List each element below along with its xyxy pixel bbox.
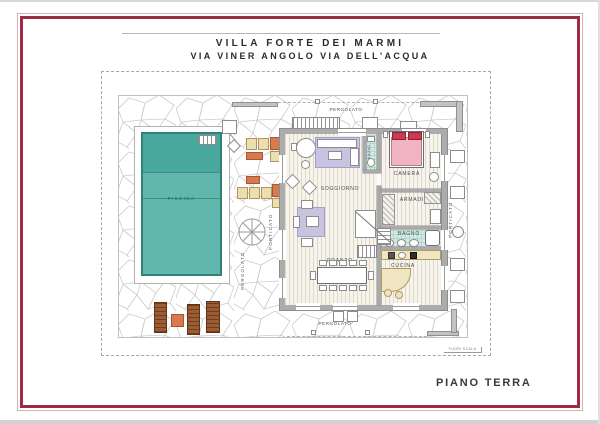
- lounger-side-table: [171, 314, 184, 327]
- window: [441, 230, 448, 250]
- window: [441, 266, 448, 290]
- pillow: [408, 132, 422, 140]
- dresser: [430, 209, 441, 224]
- pergolato-top-label: PERGOLATO: [318, 107, 374, 112]
- chair: [329, 260, 337, 266]
- stool: [395, 291, 403, 299]
- pergola-top-line: [278, 102, 424, 103]
- armchair: [301, 200, 313, 209]
- stair-treads-lower: [357, 245, 377, 258]
- lounger-table: [246, 152, 263, 160]
- nightstand: [425, 131, 430, 138]
- window: [279, 155, 286, 183]
- coffee-table: [328, 151, 342, 160]
- garden-wall-right-v: [456, 101, 463, 132]
- lounger-brown: [206, 301, 220, 333]
- french-door: [338, 129, 366, 136]
- camera-label: CAMERA: [392, 171, 422, 177]
- window: [279, 278, 286, 298]
- chair: [359, 285, 367, 291]
- window: [296, 303, 320, 310]
- floor-title: PIANO TERRA: [436, 377, 504, 389]
- armadi-label: ARMADI: [398, 197, 426, 203]
- round-table: [296, 138, 316, 158]
- cucina-label: CUCINA: [389, 263, 417, 269]
- lounger: [249, 187, 260, 199]
- armchair: [301, 238, 313, 247]
- lounger-brown: [187, 304, 200, 335]
- pergola-bottom-line: [287, 336, 427, 337]
- chair: [368, 271, 374, 280]
- chair: [291, 143, 297, 151]
- pool-lane-line: [143, 172, 220, 173]
- pouf: [429, 172, 439, 182]
- lounger: [246, 138, 257, 150]
- sink: [409, 239, 419, 247]
- lounger: [258, 138, 269, 150]
- scale-note: FUORI SCALA: [444, 347, 482, 353]
- window: [333, 303, 357, 310]
- outdoor-seat: [450, 290, 465, 303]
- bidet: [397, 239, 406, 247]
- title-rule: [122, 33, 440, 34]
- outdoor-seat: [450, 258, 465, 271]
- piscina-label: PISCINA: [143, 196, 220, 201]
- sink: [367, 136, 375, 142]
- small-bath-label: BAGNO: [367, 143, 371, 159]
- wardrobe: [424, 192, 441, 204]
- sheet-title: VILLA FORTE DEI MARMI: [160, 38, 460, 49]
- pergolato-left-label: PERGOLATO: [240, 246, 245, 290]
- stair-treads: [377, 228, 391, 245]
- wall: [363, 170, 381, 173]
- chair: [349, 285, 357, 291]
- dresser: [430, 152, 440, 168]
- window: [393, 303, 419, 310]
- dining-table: [317, 267, 367, 284]
- stool: [384, 289, 392, 297]
- sheet-subtitle: VIA VINER ANGOLO VIA DELL'ACQUA: [160, 51, 460, 61]
- kitchen-sink: [398, 252, 406, 259]
- lounger: [237, 187, 248, 199]
- stove: [388, 252, 395, 259]
- chair: [349, 260, 357, 266]
- garden-wall-bottom-v: [451, 309, 457, 333]
- soggiorno-label: SOGGIORNO: [316, 186, 364, 192]
- bagno-label: BAGNO: [396, 231, 422, 237]
- oven: [410, 252, 417, 259]
- chair: [339, 285, 347, 291]
- outdoor-seat: [450, 150, 465, 163]
- chair: [310, 271, 316, 280]
- pergola-post: [373, 99, 378, 104]
- wardrobe: [382, 194, 395, 225]
- lounger-brown: [154, 302, 167, 333]
- sofa: [317, 139, 357, 148]
- pergola-post: [311, 330, 316, 335]
- lounger: [261, 187, 272, 199]
- pool: PISCINA: [141, 132, 222, 276]
- outdoor-seat: [450, 186, 465, 199]
- pool-equipment-box: [222, 120, 237, 134]
- drawing-sheet: VILLA FORTE DEI MARMI VIA VINER ANGOLO V…: [0, 0, 600, 424]
- sofa-arm: [350, 148, 359, 166]
- wc: [367, 158, 375, 167]
- stair-landing: [355, 210, 376, 238]
- window: [441, 155, 448, 181]
- nightstand: [383, 131, 388, 138]
- chair: [319, 260, 327, 266]
- window: [279, 230, 286, 260]
- wall: [363, 134, 366, 172]
- garden-wall-left: [232, 102, 278, 107]
- pillow: [392, 132, 406, 140]
- outdoor-table: [452, 226, 464, 238]
- chair: [339, 260, 347, 266]
- pergolato-bottom-label: PERGOLATO: [310, 321, 360, 326]
- lounger-table: [246, 176, 260, 184]
- pergola-post: [315, 99, 320, 104]
- page-edge-top: [0, 0, 600, 2]
- side-table: [293, 216, 300, 228]
- page-edge-bottom: [0, 420, 600, 424]
- pouf: [301, 160, 310, 169]
- chair: [359, 260, 367, 266]
- porticato-left-label: PORTICATO: [268, 204, 273, 250]
- pergola-post: [365, 330, 370, 335]
- mattress: [391, 137, 422, 166]
- pool-ladder: [198, 135, 217, 145]
- bathtub: [425, 230, 440, 246]
- chair: [319, 285, 327, 291]
- chair: [329, 285, 337, 291]
- low-table: [306, 216, 319, 227]
- wall: [377, 134, 381, 172]
